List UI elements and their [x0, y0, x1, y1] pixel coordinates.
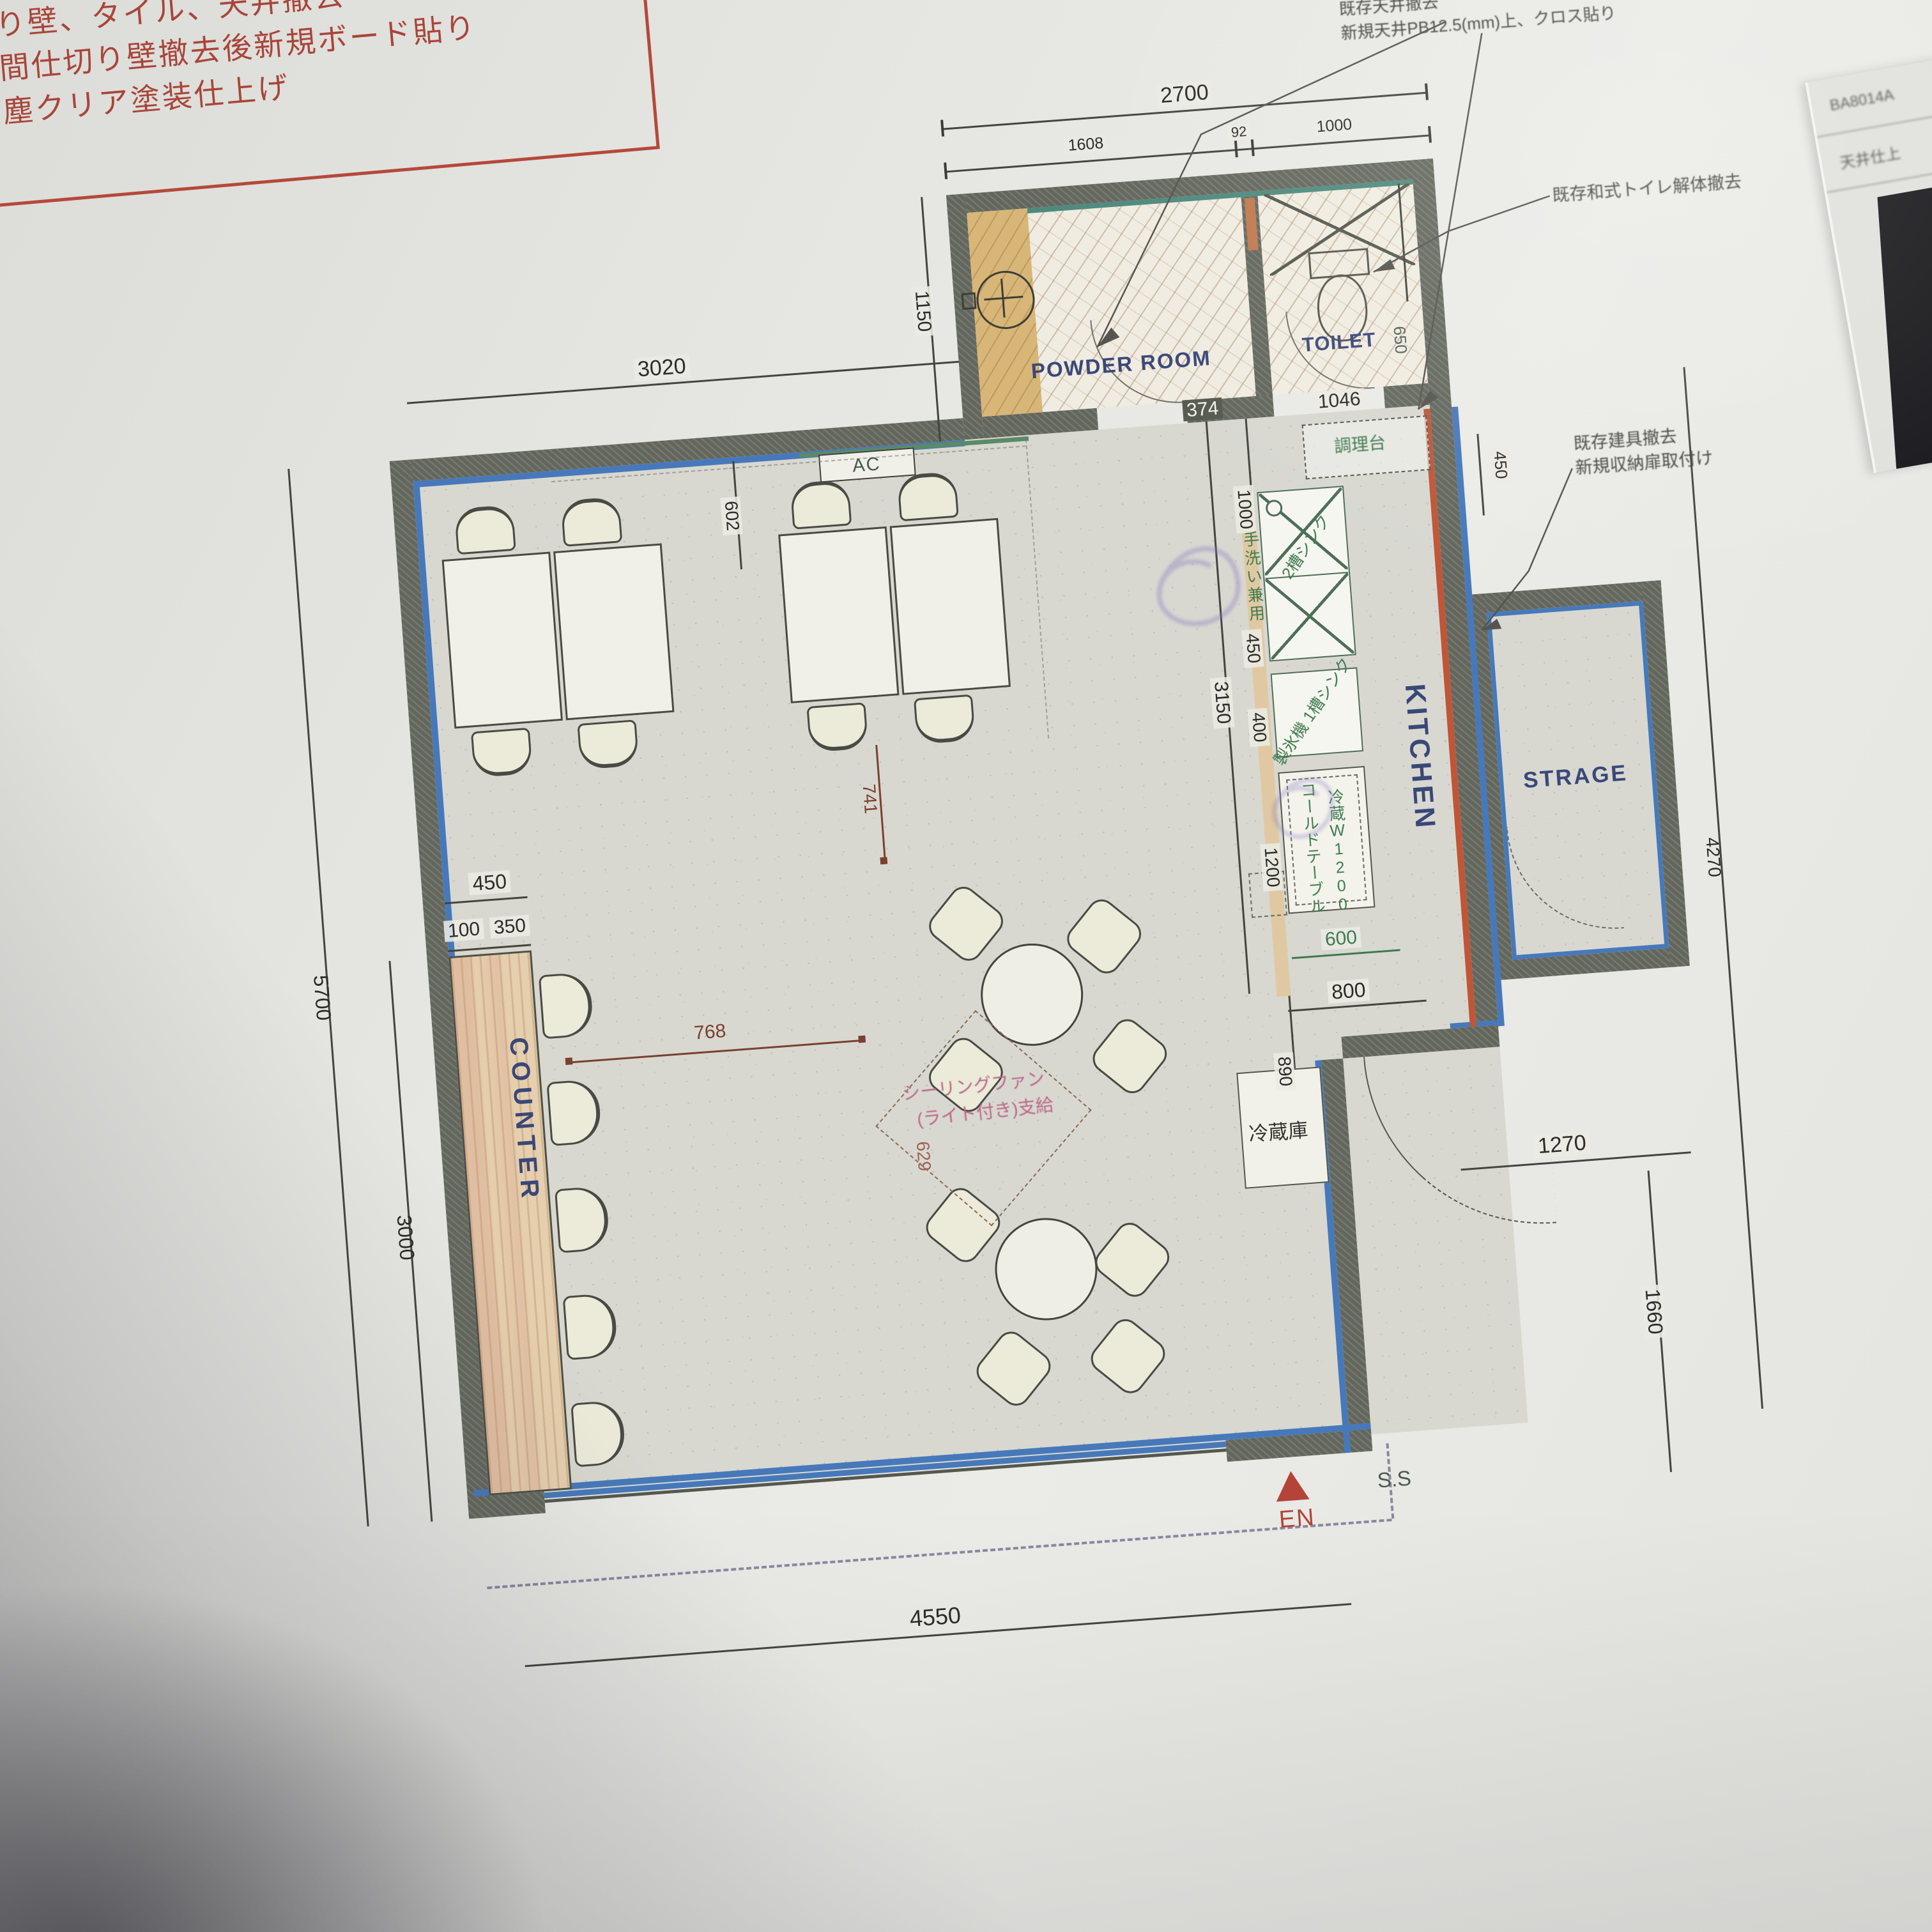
photo-canvas: 2700 1608 92 1000 1150 650 3020 602 374 … [0, 0, 1932, 1932]
adjacent-sheet-dark-panel [1877, 157, 1932, 469]
floor-plan: 2700 1608 92 1000 1150 650 3020 602 374 … [72, 0, 1825, 1789]
adjacent-sheet: BA8014A 天井仕上 [1805, 36, 1932, 473]
leader-lines [72, 0, 1825, 1789]
